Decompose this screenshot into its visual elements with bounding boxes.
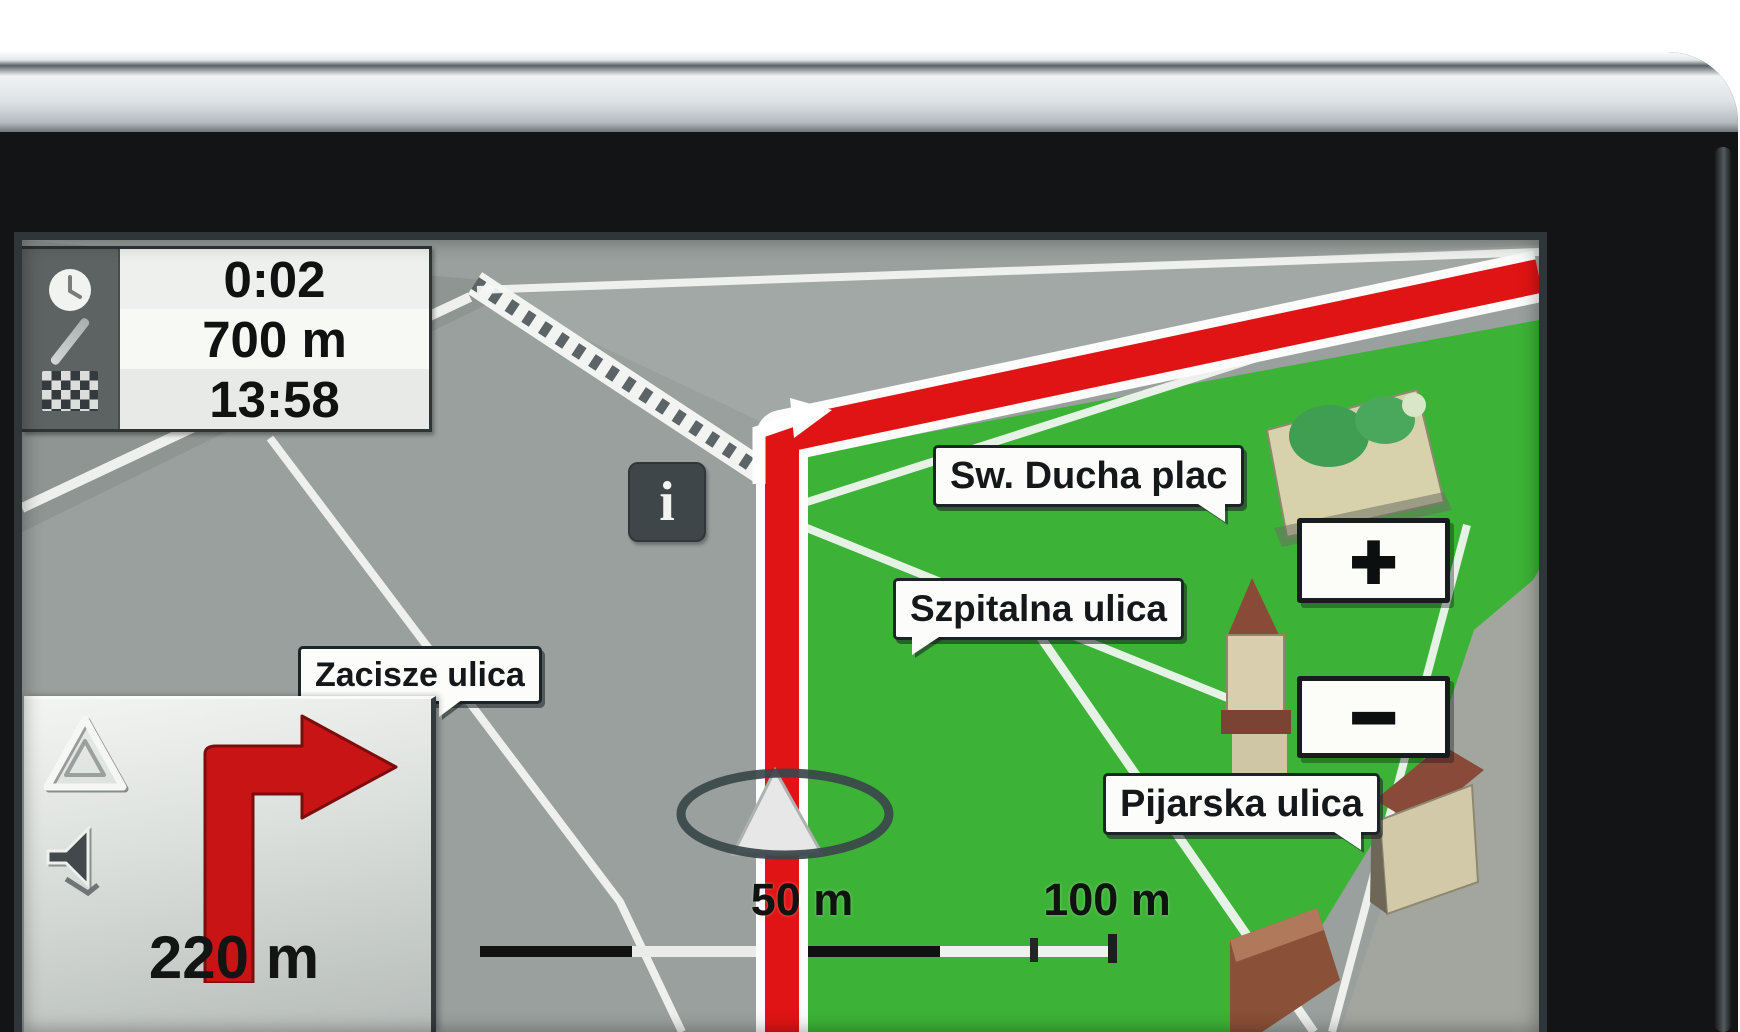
trip-info-icon-column [22,249,120,429]
street-label-text: Szpitalna ulica [910,588,1167,630]
next-turn-panel[interactable]: 220 m [24,696,436,1032]
checkered-flag-icon [42,371,98,411]
device-top-edge [0,52,1738,132]
clock-icon [47,267,93,313]
street-label-sw-ducha-plac: Sw. Ducha plac [933,445,1244,507]
label-tail [439,699,463,717]
device-side-highlight [1714,147,1732,1032]
label-tail [1331,830,1361,850]
info-icon: i [659,470,675,534]
street-label-text: Zacisze ulica [315,656,525,695]
label-tail [912,635,942,655]
street-label-szpitalna-ulica: Szpitalna ulica [893,578,1184,640]
trip-info-panel[interactable]: 0:02 700 m 13:58 [22,246,432,432]
trip-info-values: 0:02 700 m 13:58 [120,249,429,429]
gps-device-body: 0:02 700 m 13:58 i Sw. Ducha plac Szpita… [0,52,1738,1032]
distance-remaining-value: 700 m [120,309,429,369]
label-tail [1195,502,1225,522]
zoom-in-button[interactable]: + [1297,518,1450,603]
zoom-out-button[interactable]: − [1297,676,1450,758]
route-segment-icon [49,317,91,367]
time-remaining-value: 0:02 [120,249,429,309]
street-label-text: Pijarska ulica [1120,783,1363,826]
distance-to-turn-value: 220 m [79,923,389,992]
scale-label-50m: 50 m [722,874,882,926]
navigation-screen[interactable]: 0:02 700 m 13:58 i Sw. Ducha plac Szpita… [14,232,1547,1032]
map-info-button[interactable]: i [628,462,706,542]
street-label-pijarska-ulica: Pijarska ulica [1103,773,1380,835]
scale-label-100m: 100 m [1012,874,1202,926]
street-label-text: Sw. Ducha plac [950,455,1227,498]
arrival-time-value: 13:58 [120,369,429,429]
